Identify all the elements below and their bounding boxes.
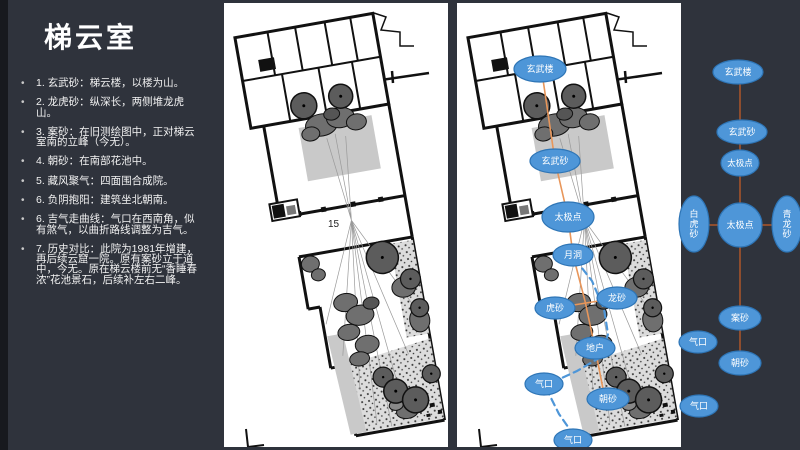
qi-kou-bottom-label: 气口	[564, 434, 582, 445]
qi-kou-upper-label: 气口	[689, 336, 707, 347]
bullet-item: 6. 吉气走曲线：气口在西南角，似有煞气，以曲折路线调整为吉气。	[36, 214, 202, 235]
presentation-slide: 梯云室 1. 玄武砂：梯云楼，以楼为山。 2. 龙虎砂：纵深长，两侧堆龙虎山。 …	[0, 0, 800, 450]
qi-kou-lower-label: 气口	[690, 400, 708, 411]
bullet-item: 6. 负阴抱阳：建筑坐北朝南。	[36, 195, 202, 205]
plan-original-svg: 15	[224, 3, 448, 447]
an-sha-label: 案砂	[731, 312, 749, 323]
qinglong-sha-label: 青龙砂	[782, 208, 791, 239]
di-hu-label: 地户	[586, 342, 604, 353]
taiji-dian-upper-label: 太极点	[727, 158, 753, 168]
bullet-item: 1. 玄武砂：梯云楼，以楼为山。	[36, 78, 202, 88]
qi-kou-left-label: 气口	[535, 378, 553, 389]
yue-dong-label: 月洞	[564, 250, 582, 260]
chao-sha-label: 朝砂	[731, 357, 749, 368]
taiji-dian-label: 太极点	[554, 211, 581, 222]
long-sha-label: 龙砂	[608, 292, 626, 303]
xuanwu-sha-label: 玄武砂	[541, 155, 568, 166]
plan-panel-annotated: 玄武楼玄武砂太极点月洞龙砂虎砂地户气口朝砂气口	[457, 3, 681, 447]
bullet-item: 7. 历史对比：此院为1981年增建，再后续云窟一院。原有案砂立于道中，今无。原…	[36, 244, 202, 285]
chao-sha-label: 朝砂	[599, 393, 617, 404]
slide-edge-strip	[0, 0, 8, 450]
bullet-item: 4. 朝砂：在南部花池中。	[36, 156, 202, 166]
taiji-dian-center-label: 太极点	[726, 219, 753, 230]
bullet-item: 3. 案砂：在旧测绘图中，正对梯云室南的立峰（今无）。	[36, 127, 202, 148]
bullet-list: 1. 玄武砂：梯云楼，以楼为山。 2. 龙虎砂：纵深长，两侧堆龙虎山。 3. 案…	[20, 78, 202, 294]
baihu-sha-label: 白虎砂	[689, 208, 698, 239]
plan-annotated-svg: 玄武楼玄武砂太极点月洞龙砂虎砂地户气口朝砂气口	[457, 3, 681, 447]
slide-title: 梯云室	[44, 16, 137, 56]
plan-scale-label: 15	[328, 219, 340, 230]
bullet-item: 2. 龙虎砂：纵深长，两侧堆龙虎山。	[36, 97, 202, 118]
fengshui-diagram: 玄武楼玄武砂太极点白虎砂太极点青龙砂案砂气口朝砂气口	[660, 0, 800, 450]
hu-sha-label: 虎砂	[546, 302, 564, 313]
xuanwu-sha-label: 玄武砂	[728, 126, 755, 137]
xuanwu-lou-label: 玄武楼	[724, 66, 751, 77]
fengshui-diagram-svg: 玄武楼玄武砂太极点白虎砂太极点青龙砂案砂气口朝砂气口	[660, 0, 800, 450]
bullet-item: 5. 藏风聚气：四面围合成院。	[36, 176, 202, 186]
xuanwu-lou-label: 玄武楼	[526, 63, 553, 74]
plan-panel-original: 15	[224, 3, 448, 447]
